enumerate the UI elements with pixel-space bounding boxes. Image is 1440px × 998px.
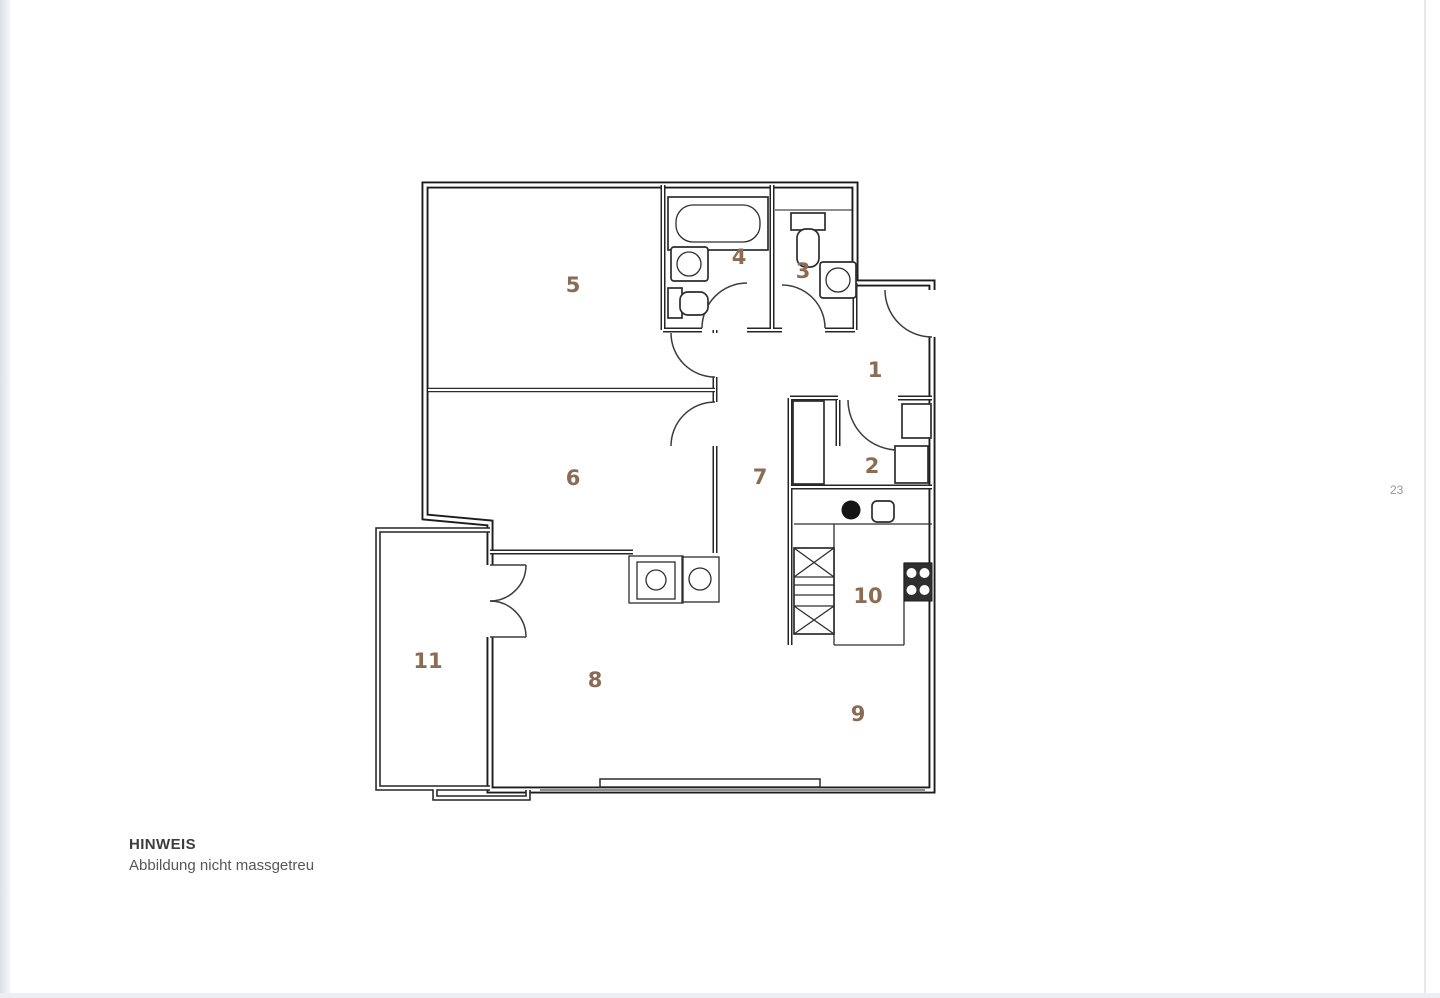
toilet-icon	[668, 288, 708, 318]
balcony-walls	[378, 530, 528, 798]
page-edge-bottom	[0, 993, 1440, 998]
page-number: 23	[1390, 483, 1403, 497]
toilet-icon	[775, 210, 853, 267]
sink-icon	[820, 262, 856, 298]
cooktop-icon	[904, 563, 932, 601]
kitchen-sink-icon	[842, 501, 895, 523]
door-swing-icon	[490, 283, 932, 637]
wardrobe-icon	[793, 401, 931, 484]
note-title: HINWEIS	[129, 836, 314, 853]
floor-plan	[360, 170, 960, 820]
document-page: 1234567891011 HINWEIS Abbildung nicht ma…	[0, 0, 1440, 998]
note-subtitle: Abbildung nicht massgetreu	[129, 857, 314, 874]
bathtub-icon	[668, 197, 768, 250]
dryer-icon	[682, 557, 719, 602]
note-block: HINWEIS Abbildung nicht massgetreu	[129, 836, 314, 874]
washer-icon	[629, 556, 683, 603]
page-edge-right	[1424, 0, 1426, 998]
page-edge-left	[0, 0, 10, 998]
tall-cabinet-icon	[794, 548, 834, 634]
sink-icon	[671, 247, 708, 281]
